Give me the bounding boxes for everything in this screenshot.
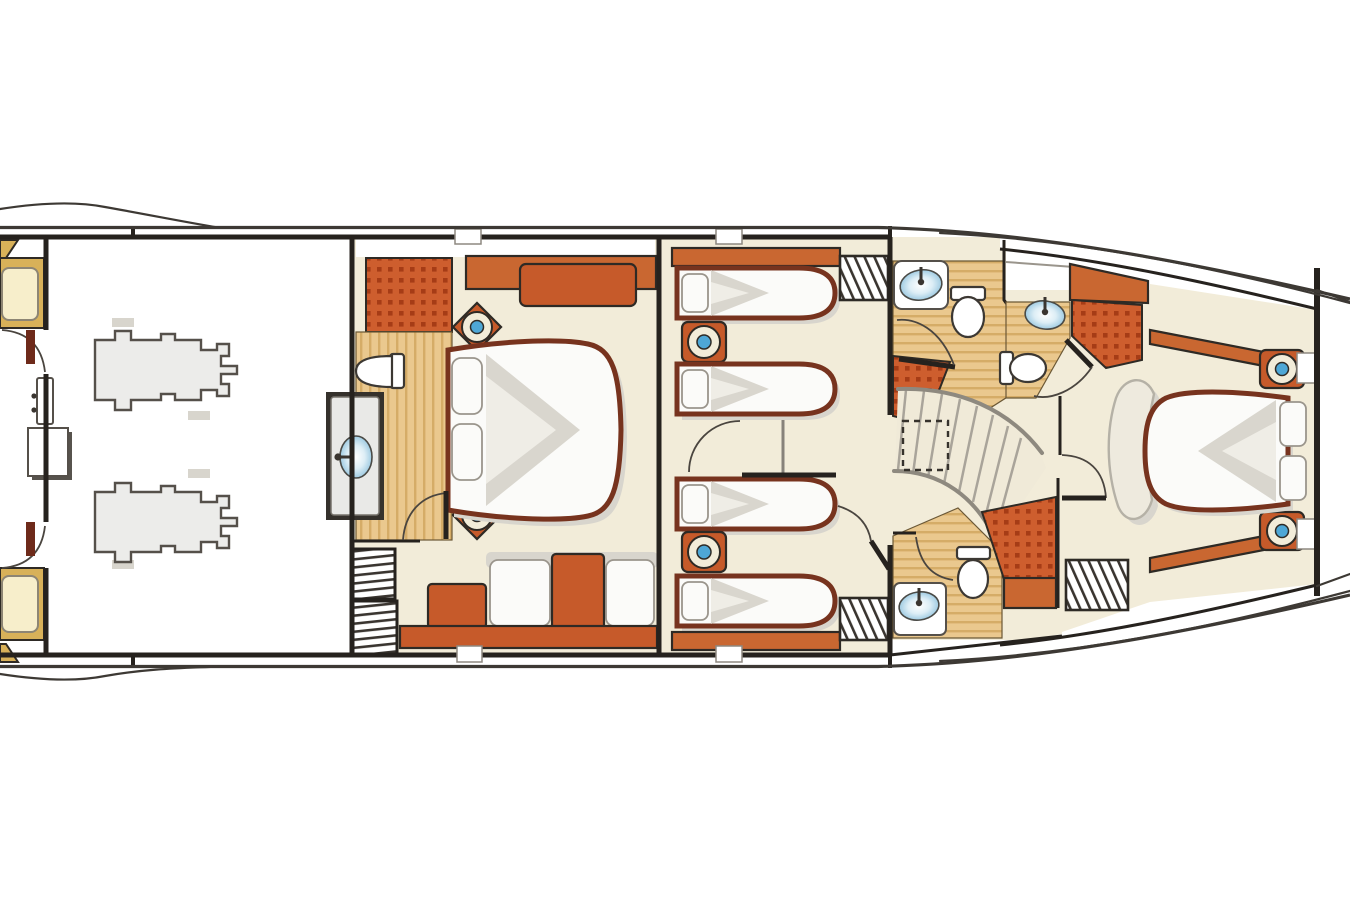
lamp-blue: [471, 321, 484, 334]
engine-port: [95, 331, 237, 410]
guest-bed-2: [677, 364, 840, 420]
deck-hatch: [455, 229, 481, 244]
guest-bed-1: [677, 268, 840, 324]
sofa-cushion: [490, 560, 550, 626]
cabinet: [1004, 578, 1056, 608]
crew-door-leaf: [26, 522, 35, 556]
toilet: [1000, 352, 1046, 384]
cabinet-sliver: [0, 240, 18, 258]
crew-door-arc: [2, 330, 45, 372]
engine-mount: [112, 318, 134, 327]
cabinet-band: [672, 248, 840, 266]
master-stairs-upper: [353, 549, 395, 599]
master-bed: [448, 341, 627, 526]
lamp-blue: [1276, 525, 1289, 538]
bow-stem-lines: [1317, 290, 1350, 586]
sheer-line-starboard: [0, 667, 218, 680]
toilet: [951, 287, 985, 337]
louver-vent: [840, 256, 888, 300]
lamp-blue: [697, 545, 711, 559]
crew-door-arc: [2, 526, 45, 568]
yacht-lower-deck-plan: [0, 0, 1350, 900]
louver-vent: [840, 598, 888, 640]
sofa-console: [552, 554, 604, 630]
master-vanity-sink: [326, 392, 384, 520]
engine-room: [95, 318, 237, 569]
side-table: [428, 584, 486, 628]
pillow: [452, 358, 482, 414]
master-dresser: [520, 264, 636, 306]
deck-hatch: [457, 646, 482, 662]
engine-mount: [188, 469, 210, 478]
pillow: [452, 424, 482, 480]
cabinet-band: [672, 632, 840, 650]
nightstand: [682, 532, 726, 572]
toilet: [957, 547, 990, 598]
vip-bed: [1145, 392, 1306, 516]
nightstand: [682, 322, 726, 362]
sofa-base: [400, 626, 657, 648]
hull-window: [1297, 353, 1315, 383]
master-stairs-lower: [353, 601, 397, 654]
louver-vent: [1066, 560, 1128, 610]
crew-door-leaf: [26, 330, 35, 364]
deck-hatch: [716, 229, 742, 244]
engine-starboard: [95, 483, 237, 562]
sofa-cushion: [606, 560, 654, 626]
guest-bed-3: [677, 479, 840, 535]
lamp-blue: [1276, 363, 1289, 376]
crew-berth-starboard: [2, 576, 38, 632]
sheer-line-port: [0, 203, 218, 227]
master-shower: [366, 258, 452, 332]
floorplan-canvas: [0, 0, 1350, 900]
lamp-blue: [697, 335, 711, 349]
crew-berth-port: [2, 268, 38, 320]
engine-mount: [188, 411, 210, 420]
pillow: [1280, 456, 1306, 500]
crew-quarters: [0, 240, 72, 662]
pillow: [1280, 402, 1306, 446]
handle-dot: [31, 407, 36, 412]
guest-bed-4: [677, 576, 840, 632]
handle-dot: [31, 393, 36, 398]
deck-hatch: [716, 646, 742, 662]
hull-window: [1297, 519, 1315, 549]
side-deck-band: [356, 239, 655, 257]
